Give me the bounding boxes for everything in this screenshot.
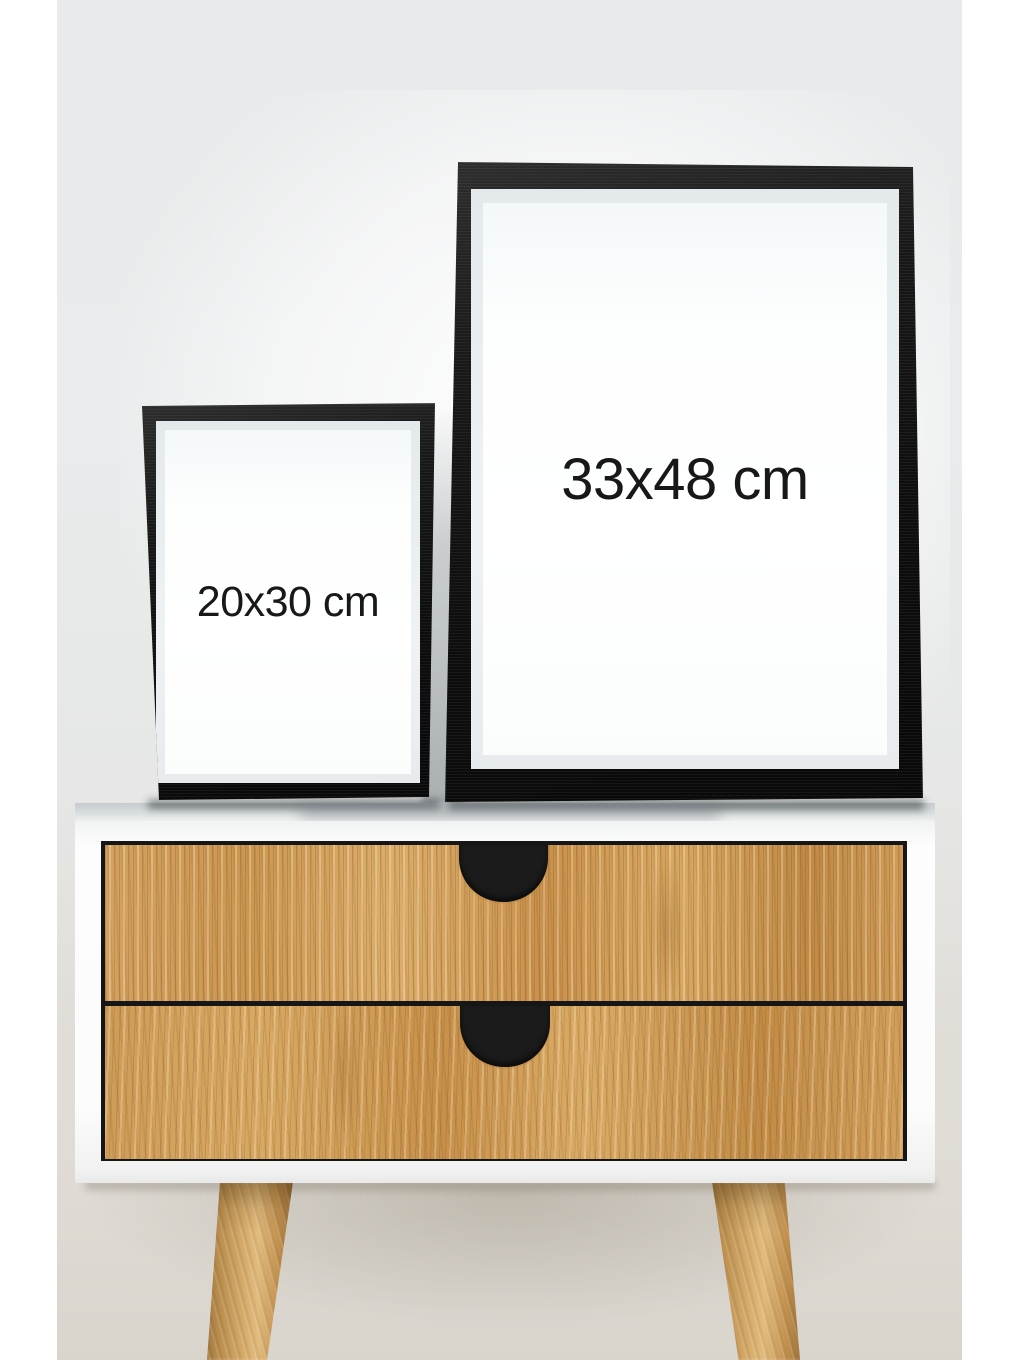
small-frame-size-label: 20x30 cm (197, 578, 379, 627)
top-surface-soft-shadow (300, 804, 720, 819)
large-picture-frame: 33x48 cm (445, 160, 923, 802)
large-frame-opening: 33x48 cm (483, 203, 887, 755)
product-photo-canvas: 20x30 cm 33x48 cm (0, 0, 1020, 1360)
cabinet-body (75, 821, 935, 1183)
large-frame-size-label: 33x48 cm (561, 446, 808, 513)
small-frame-opening: 20x30 cm (165, 430, 411, 774)
small-picture-frame: 20x30 cm (140, 402, 436, 800)
